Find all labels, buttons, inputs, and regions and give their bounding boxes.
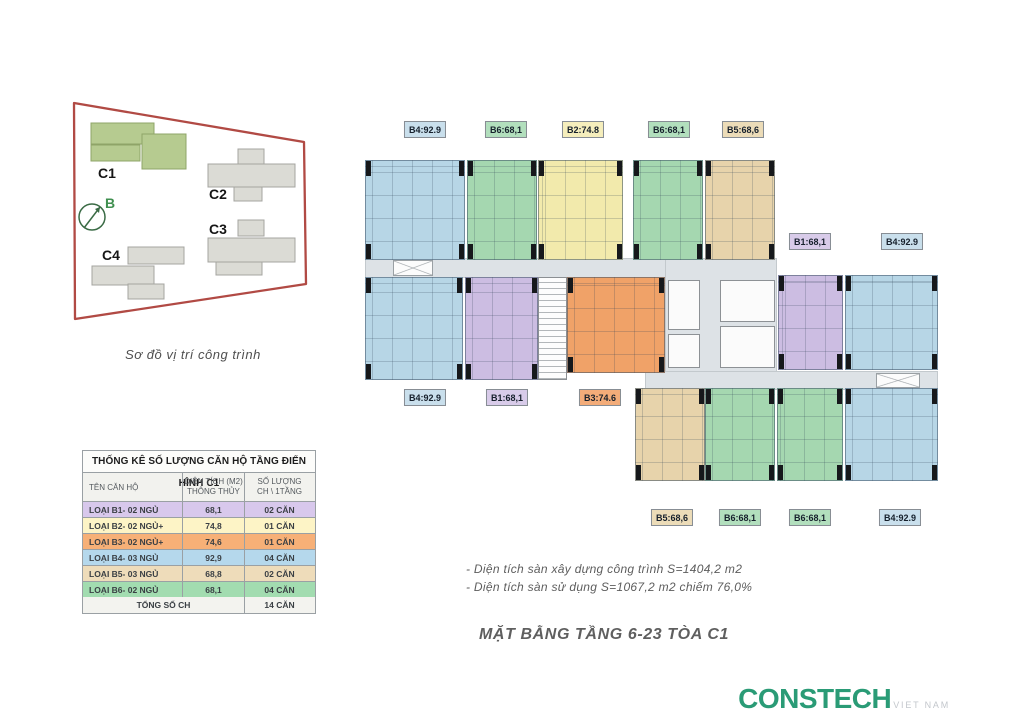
column-header-count: SỐ LƯỢNG CH \ 1TẦNG [245,473,314,501]
table-cell: 92,9 [183,550,245,565]
column-header-name: TÊN CĂN HỘ [83,473,183,501]
core-room [668,334,700,368]
constech-logo: CONSTECHVIET NAM [738,683,950,715]
unit-area-label: B3:74.6 [579,389,621,406]
table-row: LOẠI B5- 03 NGỦ68,802 CĂN [83,566,315,582]
unit-area-label: B4:92.9 [404,121,446,138]
unit-area-label: B6:68,1 [485,121,527,138]
table-cell: 68,1 [183,502,245,517]
table-cell: 04 CĂN [245,582,314,597]
total-value: 14 CĂN [245,597,314,613]
unit-b2 [538,160,623,260]
void-box [876,373,920,388]
table-row: LOẠI B1- 02 NGỦ68,102 CĂN [83,502,315,518]
unit-b3 [567,277,665,373]
table-cell: 74,6 [183,534,245,549]
area-notes: - Diện tích sàn xây dựng công trình S=14… [466,560,752,596]
table-row: LOẠI B4- 03 NGỦ92,904 CĂN [83,550,315,566]
table-cell: 02 CĂN [245,502,314,517]
stair-shaft [538,277,567,380]
unit-b4 [845,388,938,481]
table-body: LOẠI B1- 02 NGỦ68,102 CĂNLOẠI B2- 02 NGỦ… [83,502,315,597]
unit-b5 [635,388,705,481]
unit-b6 [467,160,537,260]
table-title: THỐNG KÊ SỐ LƯỢNG CĂN HỘ TẦNG ĐIỂN HÌNH … [83,451,315,473]
unit-b4 [845,275,938,370]
unit-area-label: B5:68,6 [722,121,764,138]
core-room [720,280,775,322]
table-cell: LOẠI B6- 02 NGỦ [83,582,183,597]
void-box [393,260,433,276]
table-row: LOẠI B6- 02 NGỦ68,104 CĂN [83,582,315,597]
unit-area-label: B6:68,1 [648,121,690,138]
page: C1 C2 C3 C4 B Sơ đồ vị trí công trình B4… [0,0,1024,724]
table-cell: LOẠI B2- 02 NGỦ+ [83,518,183,533]
table-cell: LOẠI B1- 02 NGỦ [83,502,183,517]
unit-area-label: B6:68,1 [789,509,831,526]
unit-b1 [465,277,538,380]
logo-text: CONSTECH [738,683,891,714]
table-row: LOẠI B2- 02 NGỦ+74,801 CĂN [83,518,315,534]
unit-area-label: B4:92.9 [879,509,921,526]
total-label: TỔNG SỐ CH [83,597,245,613]
table-cell: LOẠI B5- 03 NGỦ [83,566,183,581]
table-header-row: TÊN CĂN HỘ DIỆN TÍCH (M2) THÔNG THỦY SỐ … [83,473,315,502]
table-row: LOẠI B3- 02 NGỦ+74,601 CĂN [83,534,315,550]
table-total-row: TỔNG SỐ CH 14 CĂN [83,597,315,613]
unit-b5 [705,160,775,260]
logo-country: VIET NAM [893,700,950,710]
table-cell: LOẠI B3- 02 NGỦ+ [83,534,183,549]
column-header-area: DIỆN TÍCH (M2) THÔNG THỦY [183,473,245,501]
unit-area-label: B1:68,1 [789,233,831,250]
core-room [720,326,775,368]
table-cell: 68,1 [183,582,245,597]
unit-area-label: B6:68,1 [719,509,761,526]
table-cell: 68,8 [183,566,245,581]
unit-area-label: B2:74.8 [562,121,604,138]
table-cell: 02 CĂN [245,566,314,581]
unit-area-label: B4:92.9 [404,389,446,406]
unit-area-label: B5:68,6 [651,509,693,526]
unit-b1 [778,275,843,370]
table-cell: 01 CĂN [245,534,314,549]
unit-b4 [365,160,465,260]
floor-plan: B4:92.9B6:68,1B2:74.8B6:68,1B5:68,6B1:68… [0,0,1024,724]
table-cell: 01 CĂN [245,518,314,533]
unit-b6 [633,160,703,260]
unit-area-label: B1:68,1 [486,389,528,406]
note-line: - Diện tích sàn sử dụng S=1067,2 m2 chiế… [466,578,752,596]
apartment-stats-table: THỐNG KÊ SỐ LƯỢNG CĂN HỘ TẦNG ĐIỂN HÌNH … [82,450,316,614]
plan-title: MẶT BẰNG TẦNG 6-23 TÒA C1 [479,626,729,644]
table-cell: LOẠI B4- 03 NGỦ [83,550,183,565]
unit-b6 [705,388,775,481]
unit-b4 [365,277,463,380]
table-cell: 74,8 [183,518,245,533]
unit-b6 [777,388,843,481]
table-cell: 04 CĂN [245,550,314,565]
unit-area-label: B4:92.9 [881,233,923,250]
note-line: - Diện tích sàn xây dựng công trình S=14… [466,560,752,578]
core-room [668,280,700,330]
